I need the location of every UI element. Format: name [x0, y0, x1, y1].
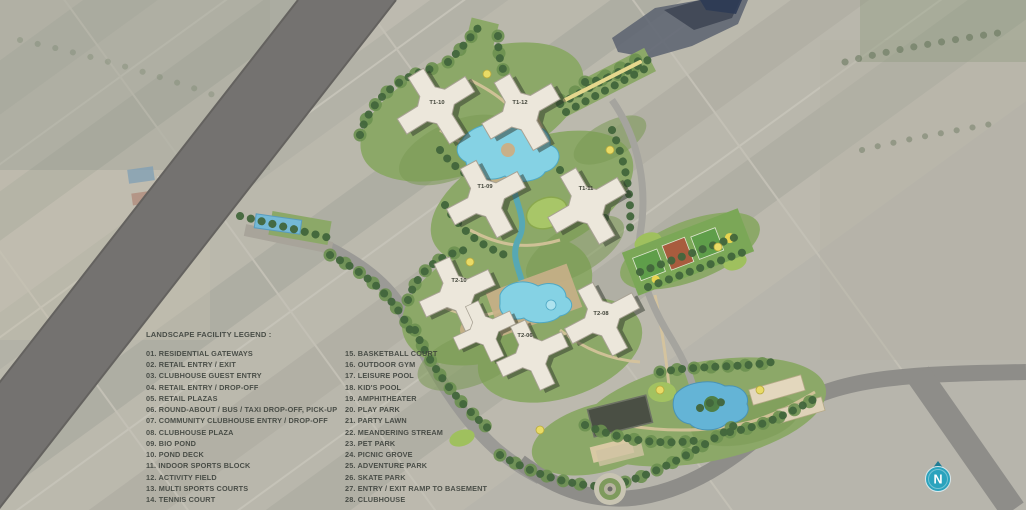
legend-item: 06. ROUND-ABOUT / BUS / TAXI DROP-OFF, P… [146, 405, 337, 414]
legend-item: 20. PLAY PARK [345, 405, 401, 414]
pool-island [501, 143, 515, 157]
tower-label-t2-10: T2-10 [451, 278, 466, 284]
legend-item: 23. PET PARK [345, 439, 396, 448]
legend-item: 15. BASKETBALL COURT [345, 349, 438, 358]
legend-item: 22. MEANDERING STREAM [345, 428, 443, 437]
legend-item: 12. ACTIVITY FIELD [146, 473, 217, 482]
legend-item: 11. INDOOR SPORTS BLOCK [146, 461, 251, 470]
legend-item: 25. ADVENTURE PARK [345, 461, 428, 470]
legend-item: 01. RESIDENTIAL GATEWAYS [146, 349, 253, 358]
legend-item: 17. LEISURE POOL [345, 371, 414, 380]
legend-item: 08. CLUBHOUSE PLAZA [146, 428, 234, 437]
tower-label-t1-11: T1-11 [579, 186, 595, 192]
legend-item: 14. TENNIS COURT [146, 495, 216, 504]
legend-item: 21. PARTY LAWN [345, 416, 407, 425]
legend-item: 10. POND DECK [146, 450, 204, 459]
legend-item: 24. PICNIC GROVE [345, 450, 413, 459]
compass-north-label: N [933, 473, 942, 487]
legend-item: 02. RETAIL ENTRY / EXIT [146, 360, 236, 369]
legend-title: LANDSCAPE FACILITY LEGEND : [146, 330, 271, 339]
legend-item: 09. BIO POND [146, 439, 196, 448]
tower-label-t1-10: T1-10 [429, 100, 444, 106]
legend-item: 03. CLUBHOUSE GUEST ENTRY [146, 371, 262, 380]
legend-item: 18. KID'S POOL [345, 383, 402, 392]
legend-item: 07. COMMUNITY CLUBHOUSE ENTRY / DROP-OFF [146, 416, 328, 425]
roundabout [594, 473, 626, 505]
tower-label-t2-08: T2-08 [593, 311, 609, 317]
tower-label-t1-09: T1-09 [477, 184, 493, 190]
legend-item: 13. MULTI SPORTS COURTS [146, 484, 248, 493]
legend-item: 05. RETAIL PLAZAS [146, 394, 218, 403]
kids-pool [546, 300, 556, 310]
legend-item: 04. RETAIL ENTRY / DROP-OFF [146, 383, 259, 392]
tower-label-t2-06: T2-06 [517, 333, 533, 339]
legend-item: 26. SKATE PARK [345, 473, 406, 482]
site-plan-canvas: T1-10 T1-12 T1-09 T1-11 T2-10 T2-06 T2-0… [0, 0, 1026, 510]
legend-item: 28. CLUBHOUSE [345, 495, 405, 504]
legend-item: 27. ENTRY / EXIT RAMP TO BASEMENT [345, 484, 488, 493]
tower-label-t1-12: T1-12 [512, 100, 527, 106]
legend-item: 16. OUTDOOR GYM [345, 360, 415, 369]
legend-item: 19. AMPHITHEATER [345, 394, 417, 403]
master-plan-screenshot: T1-10 T1-12 T1-09 T1-11 T2-10 T2-06 T2-0… [0, 0, 1026, 510]
